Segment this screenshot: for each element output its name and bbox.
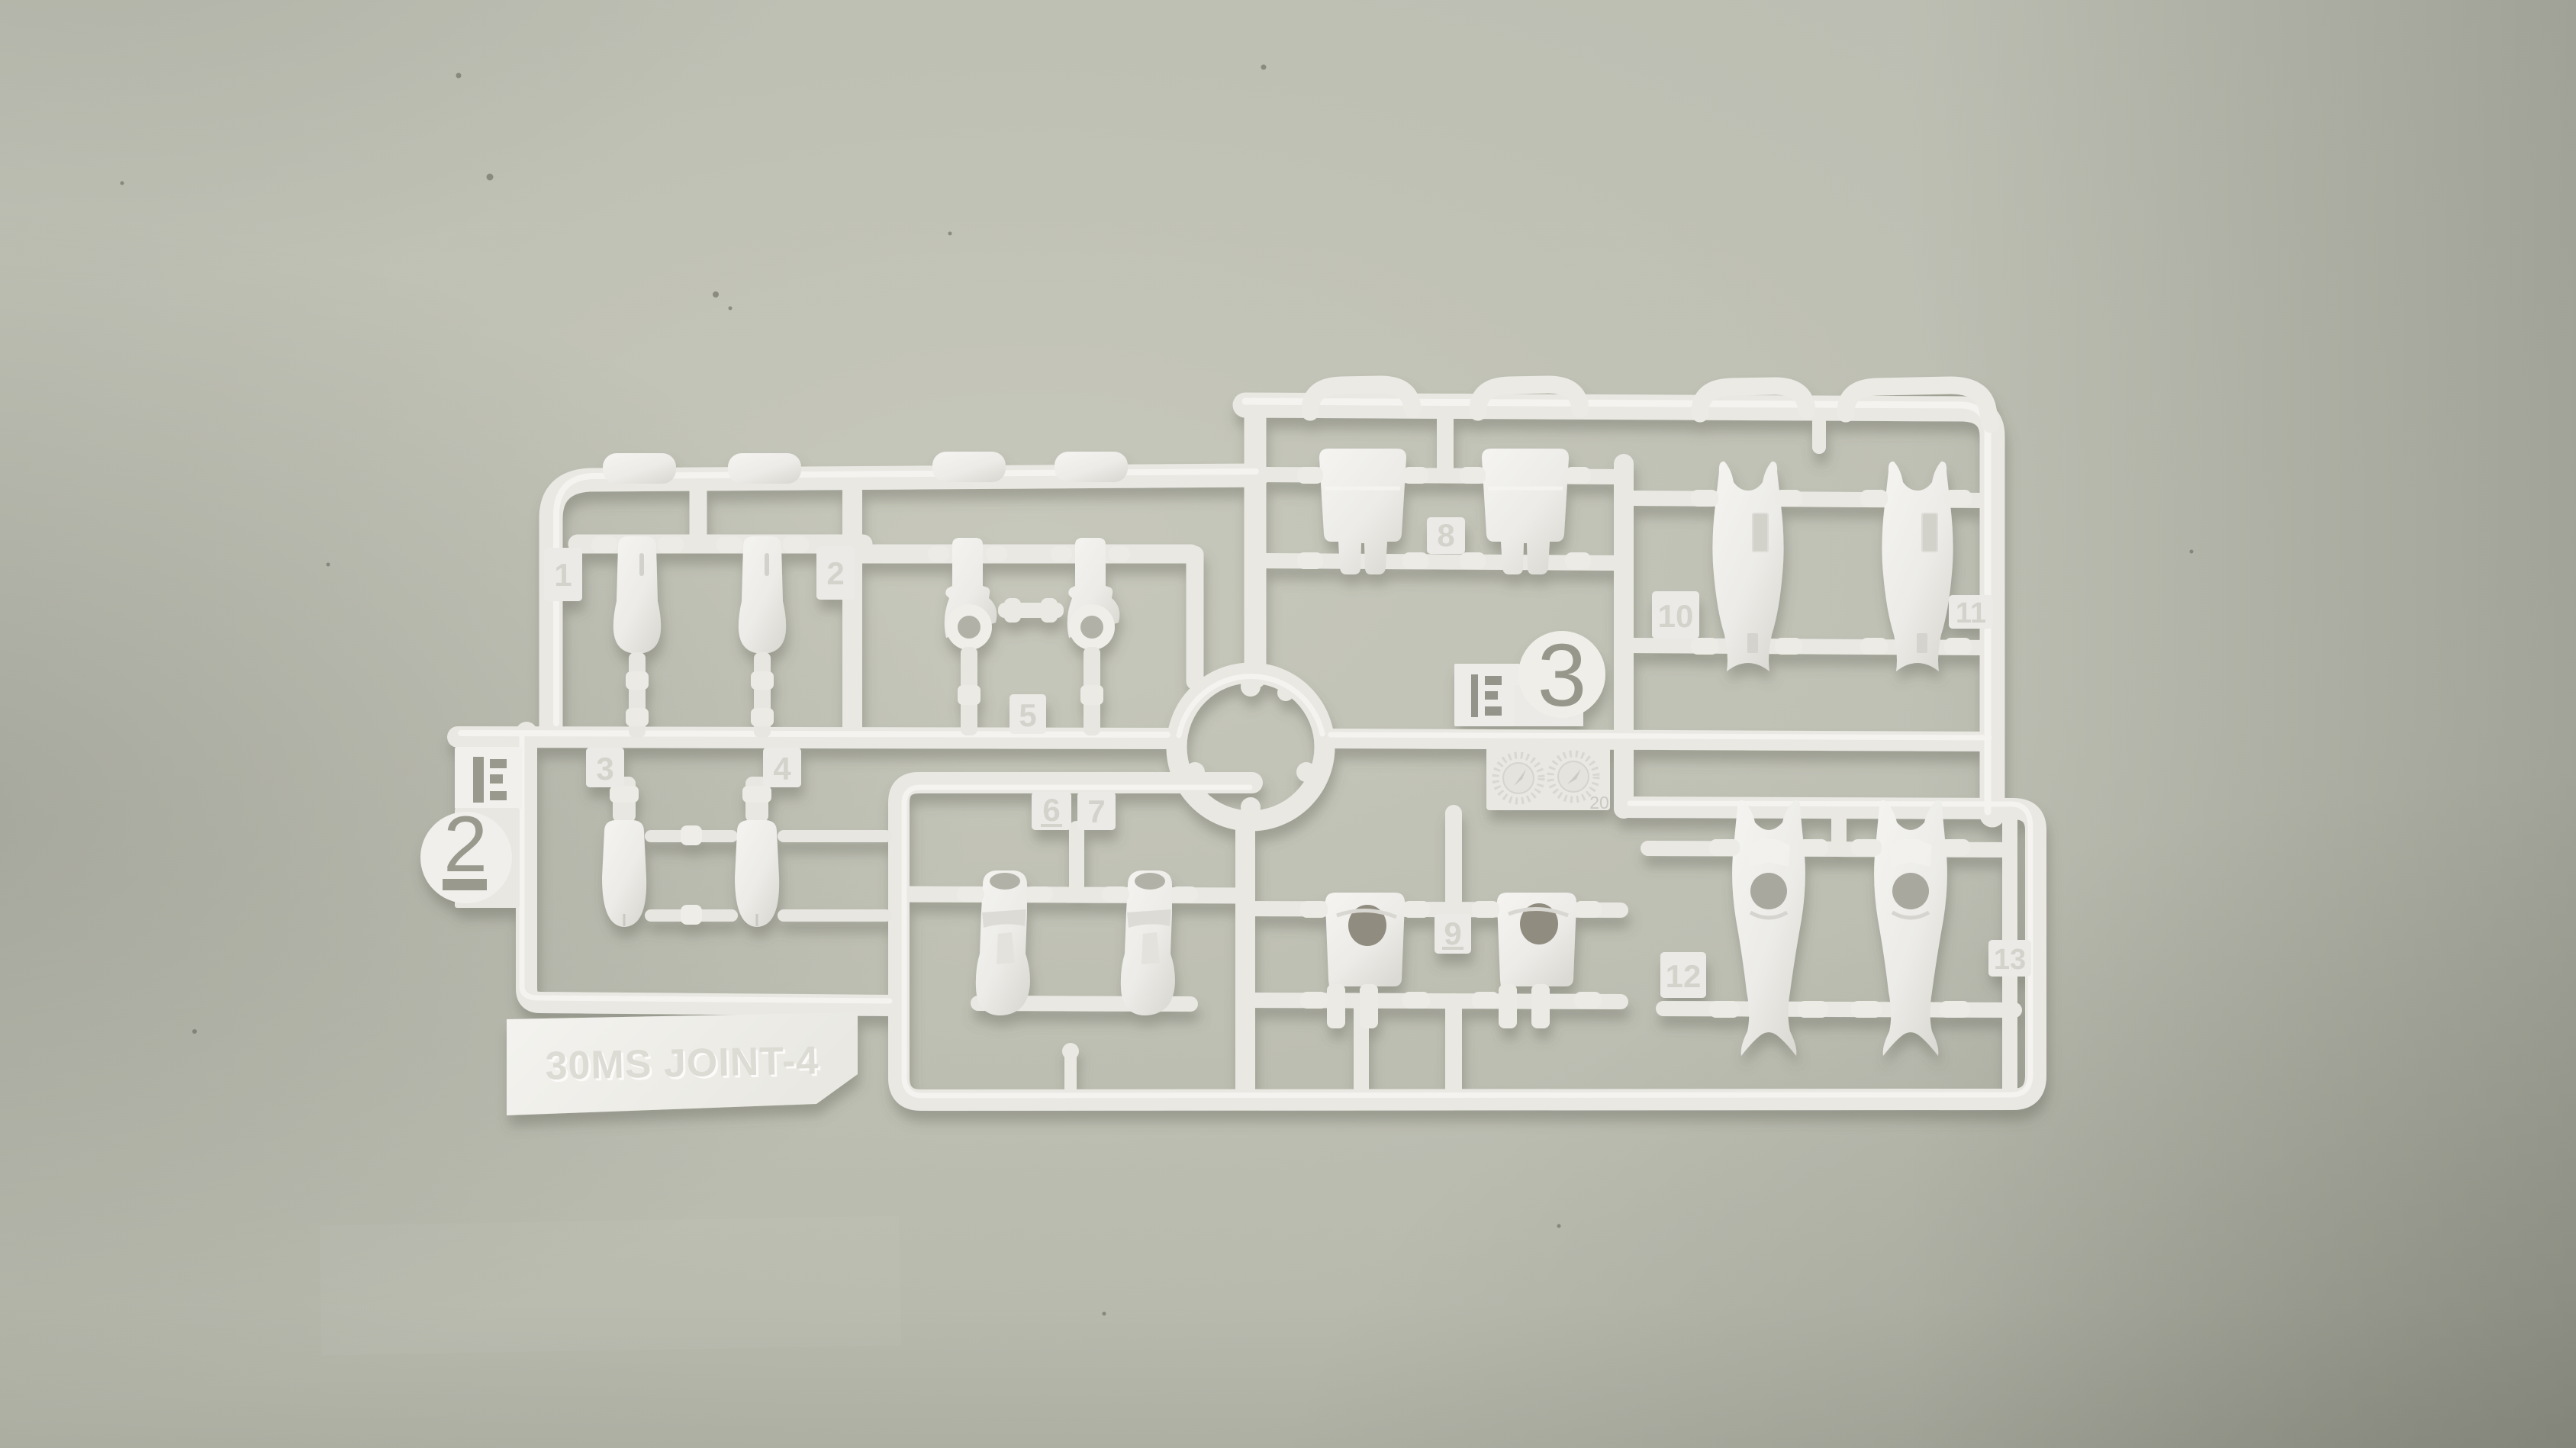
svg-text:2: 2 bbox=[443, 800, 488, 889]
svg-text:10: 10 bbox=[1658, 598, 1694, 634]
svg-text:6: 6 bbox=[1042, 792, 1060, 828]
svg-text:7: 7 bbox=[1087, 793, 1105, 829]
svg-text:8: 8 bbox=[1437, 517, 1454, 553]
svg-text:3: 3 bbox=[1538, 626, 1587, 725]
svg-text:4: 4 bbox=[773, 751, 791, 787]
svg-text:11: 11 bbox=[1956, 597, 1986, 629]
svg-text:30MS JOINT-4: 30MS JOINT-4 bbox=[545, 1038, 819, 1089]
svg-text:3: 3 bbox=[596, 751, 613, 787]
svg-text:1: 1 bbox=[554, 557, 572, 593]
svg-text:20: 20 bbox=[1589, 793, 1609, 812]
svg-text:2: 2 bbox=[826, 555, 844, 591]
svg-text:12: 12 bbox=[1666, 958, 1702, 994]
svg-text:5: 5 bbox=[1019, 697, 1036, 733]
svg-text:9: 9 bbox=[1444, 915, 1461, 951]
svg-text:13: 13 bbox=[1994, 944, 2026, 976]
